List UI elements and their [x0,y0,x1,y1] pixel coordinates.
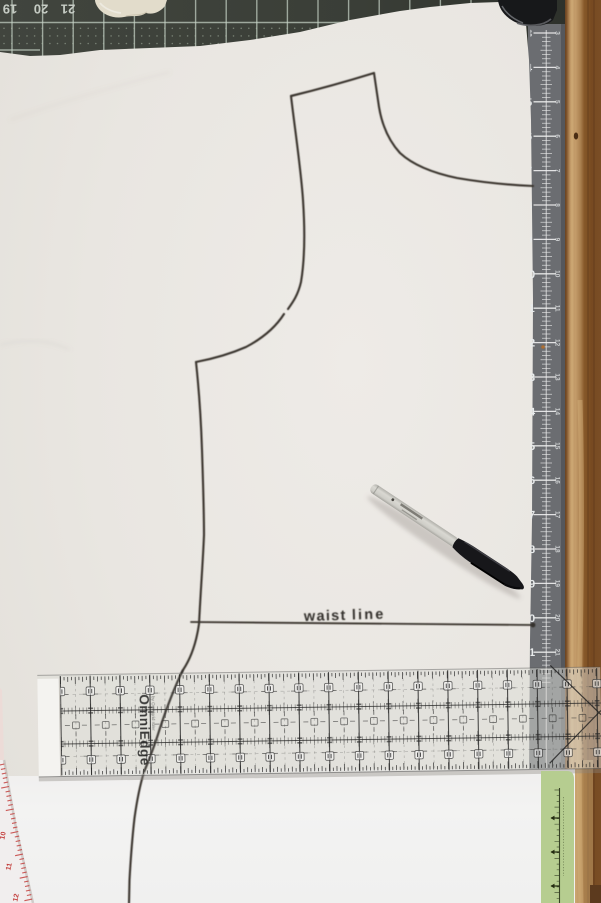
svg-text:by Omnigrid ruler: by Omnigrid ruler [151,696,157,731]
svg-text:8: 8 [553,203,560,207]
svg-text:15: 15 [553,442,560,450]
svg-text:11: 11 [553,305,560,312]
svg-text:14: 14 [553,408,560,416]
svg-text:20: 20 [34,2,48,17]
svg-text:waist: waist [303,608,346,625]
svg-text:3: 3 [553,31,560,35]
svg-text:5: 5 [553,100,560,104]
svg-text:16: 16 [553,477,560,485]
svg-text:9: 9 [553,238,560,242]
svg-text:7: 7 [553,169,560,173]
svg-text:19: 19 [3,2,17,17]
svg-text:19: 19 [553,580,560,588]
svg-text:13: 13 [553,373,560,381]
svg-text:10: 10 [553,270,560,278]
svg-text:12: 12 [553,339,560,347]
svg-text:17: 17 [553,511,560,519]
svg-text:20: 20 [553,614,560,622]
svg-text:6: 6 [553,134,560,138]
svg-text:21: 21 [61,2,75,17]
svg-text:18: 18 [553,545,560,553]
svg-text:4: 4 [553,66,560,70]
svg-text:21: 21 [553,649,560,657]
